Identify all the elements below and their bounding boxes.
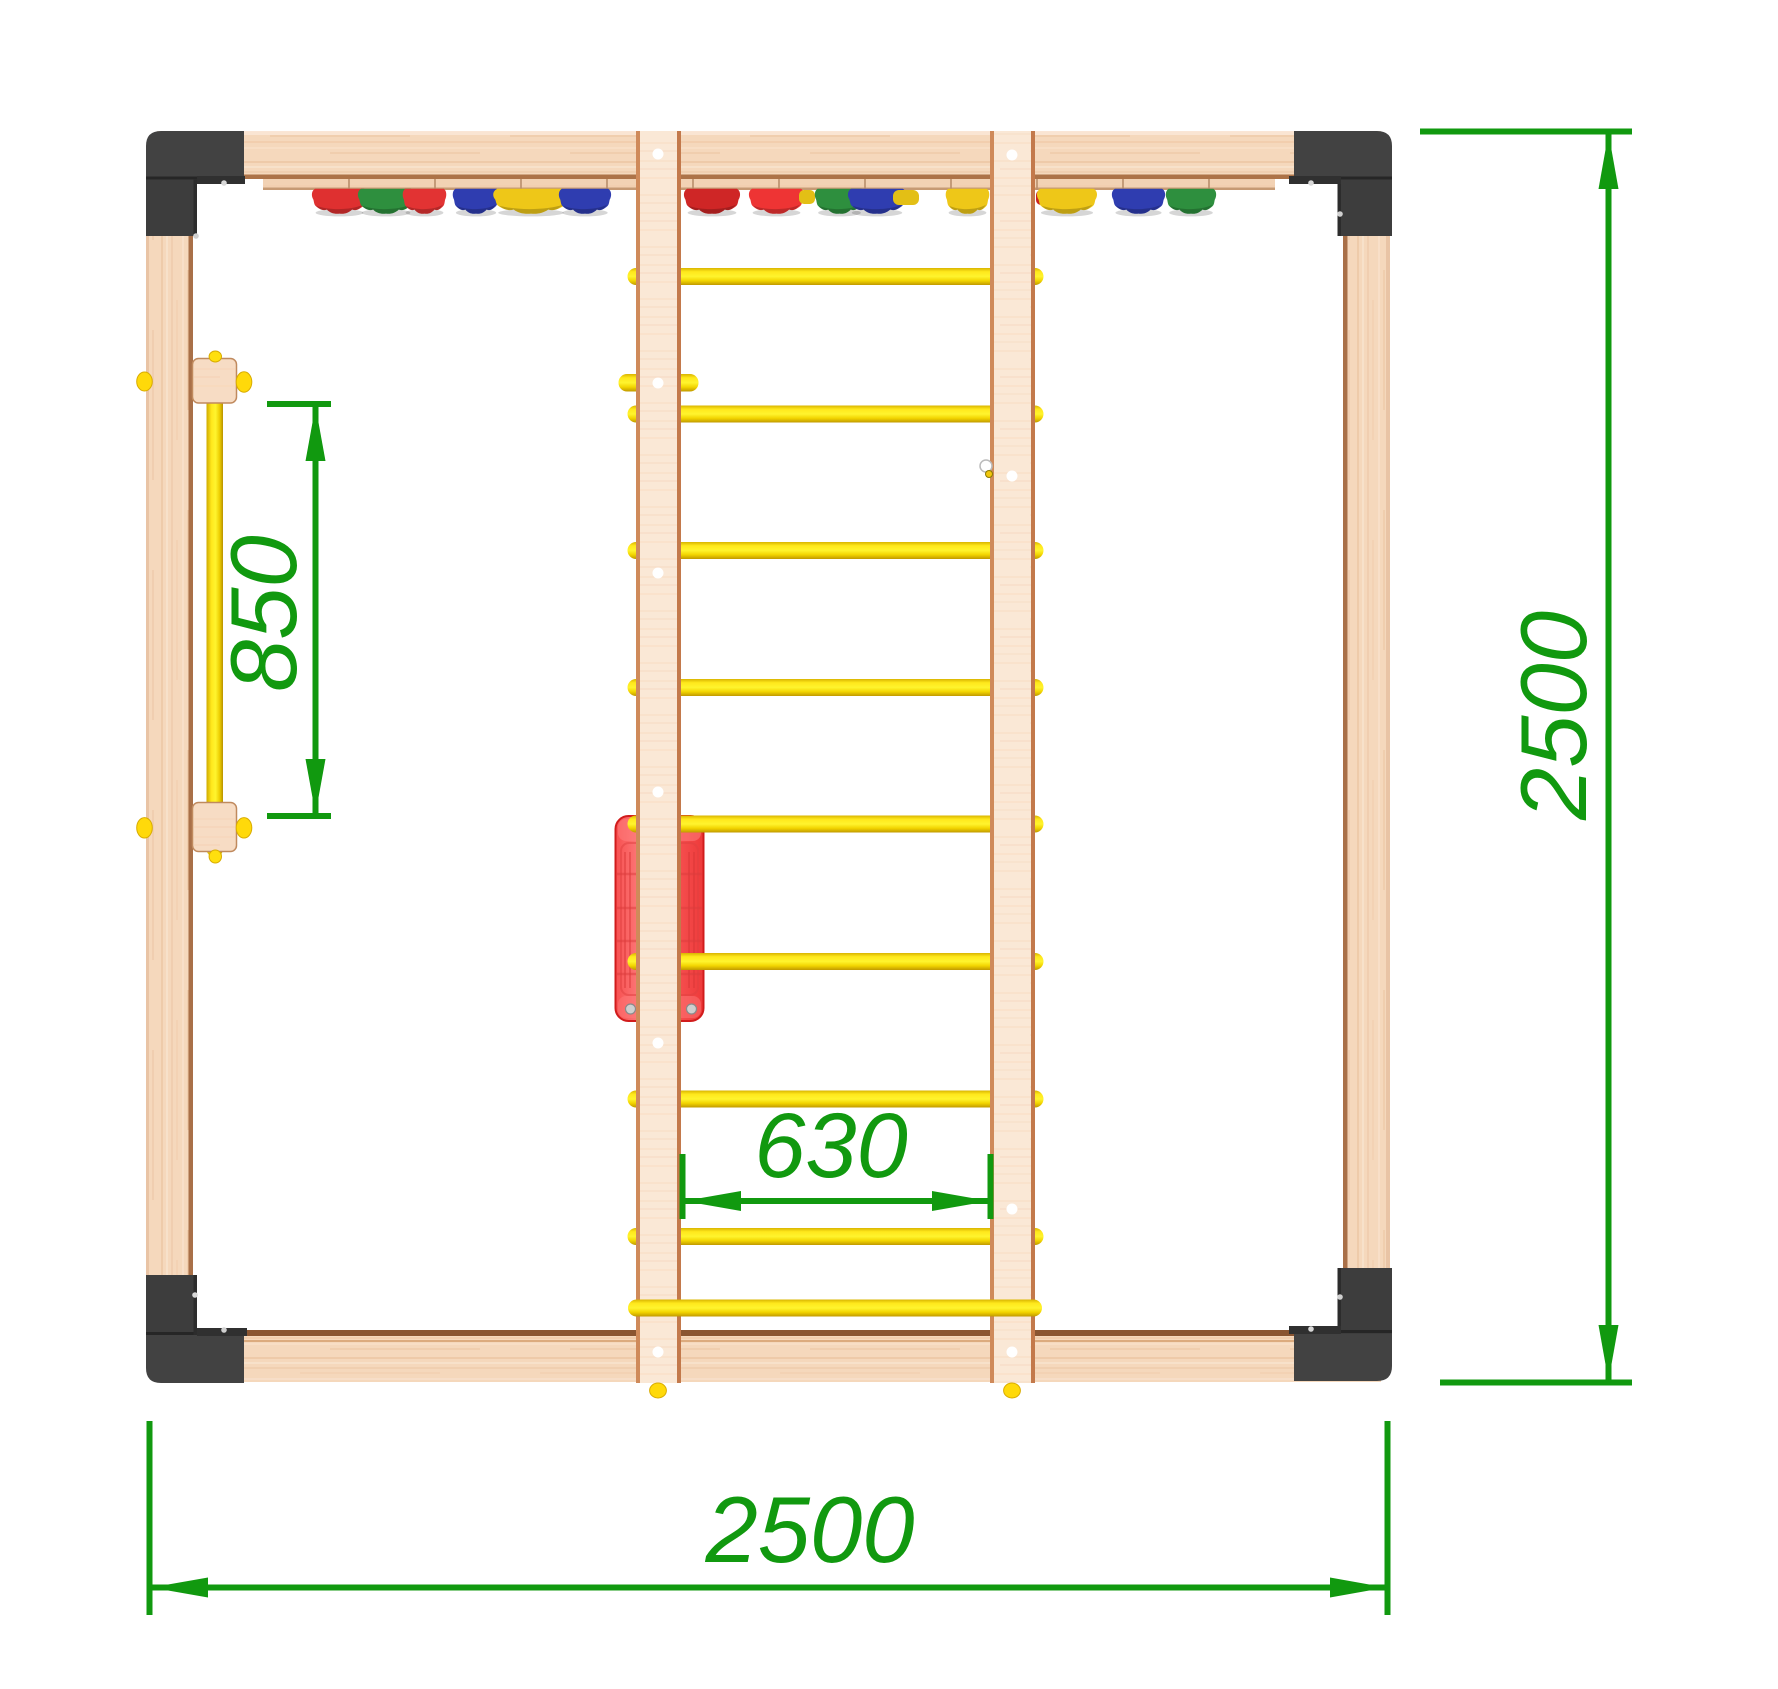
svg-text:630: 630 bbox=[754, 1095, 908, 1197]
svg-text:2500: 2500 bbox=[704, 1477, 914, 1582]
svg-text:2500: 2500 bbox=[1501, 611, 1606, 821]
svg-text:850: 850 bbox=[211, 535, 316, 692]
